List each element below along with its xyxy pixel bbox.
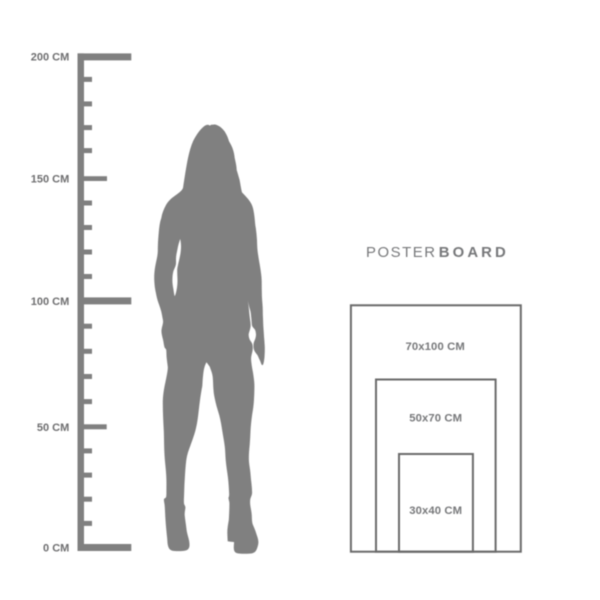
svg-text:POSTER: POSTER [366,245,437,261]
svg-text:50 CM: 50 CM [37,422,69,434]
svg-text:70x100 CM: 70x100 CM [406,341,465,353]
svg-text:0 CM: 0 CM [43,543,69,555]
svg-text:150 CM: 150 CM [31,174,70,186]
svg-text:50x70 CM: 50x70 CM [409,413,462,425]
svg-text:100 CM: 100 CM [31,296,70,308]
svg-text:BOARD: BOARD [439,245,509,261]
svg-text:200 CM: 200 CM [31,52,70,64]
svg-text:30x40 CM: 30x40 CM [409,505,462,517]
